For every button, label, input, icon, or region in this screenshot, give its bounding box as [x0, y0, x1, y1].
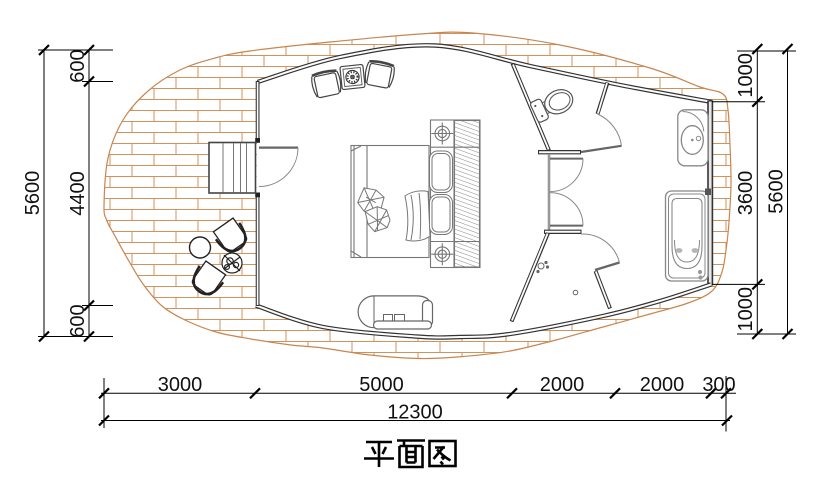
svg-text:3600: 3600 [735, 171, 757, 216]
svg-text:2000: 2000 [540, 374, 585, 396]
svg-text:300: 300 [702, 374, 735, 396]
svg-text:5600: 5600 [22, 171, 44, 216]
svg-text:600: 600 [67, 49, 89, 82]
svg-text:12300: 12300 [387, 402, 443, 424]
svg-text:1000: 1000 [735, 53, 757, 98]
svg-text:4400: 4400 [67, 171, 89, 216]
svg-text:1000: 1000 [735, 287, 757, 332]
svg-text:5600: 5600 [766, 169, 788, 214]
svg-text:2000: 2000 [640, 374, 685, 396]
svg-text:600: 600 [67, 304, 89, 337]
svg-text:3000: 3000 [158, 374, 203, 396]
svg-text:5000: 5000 [359, 374, 404, 396]
